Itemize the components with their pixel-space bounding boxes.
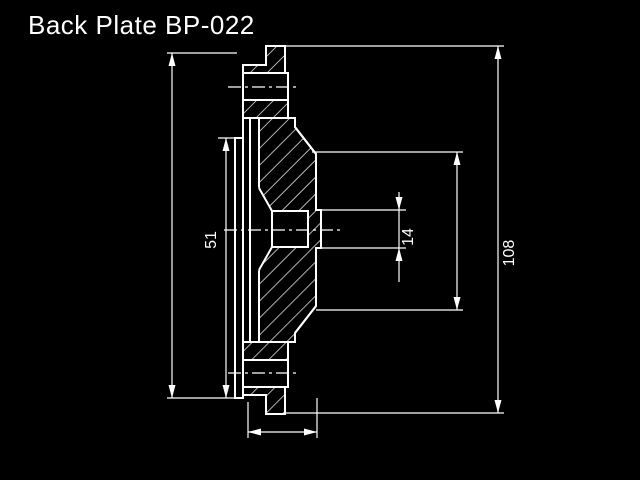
plate-rim — [235, 138, 243, 398]
arrowhead-up — [454, 152, 461, 165]
top-flange-tab — [243, 46, 285, 73]
dim-14: 14 — [322, 192, 417, 282]
arrowhead-up — [396, 248, 403, 261]
center-bore — [272, 211, 308, 247]
arrowhead-up — [169, 53, 176, 66]
arrowhead-down — [495, 400, 502, 413]
arrowhead-up — [495, 46, 502, 59]
bottom-flange-tab — [243, 387, 285, 414]
drawing-canvas: 51 14 108 — [0, 0, 640, 480]
arrowhead-down — [223, 385, 230, 398]
arrowhead-right — [304, 429, 317, 436]
dim-108-label: 108 — [501, 240, 518, 267]
arrowhead-down — [396, 197, 403, 210]
arrowhead-down — [169, 385, 176, 398]
bottom-junction — [243, 342, 288, 360]
dim-left-overall — [167, 53, 242, 398]
arrowhead-left — [248, 429, 261, 436]
top-junction — [243, 100, 288, 118]
dim-hub-diameter — [312, 152, 463, 310]
dim-14-label: 14 — [400, 228, 417, 246]
dim-51-label: 51 — [203, 231, 220, 249]
drawing-page: Back Plate BP-022 — [0, 0, 640, 480]
arrowhead-down — [454, 297, 461, 310]
arrowhead-up — [223, 138, 230, 151]
